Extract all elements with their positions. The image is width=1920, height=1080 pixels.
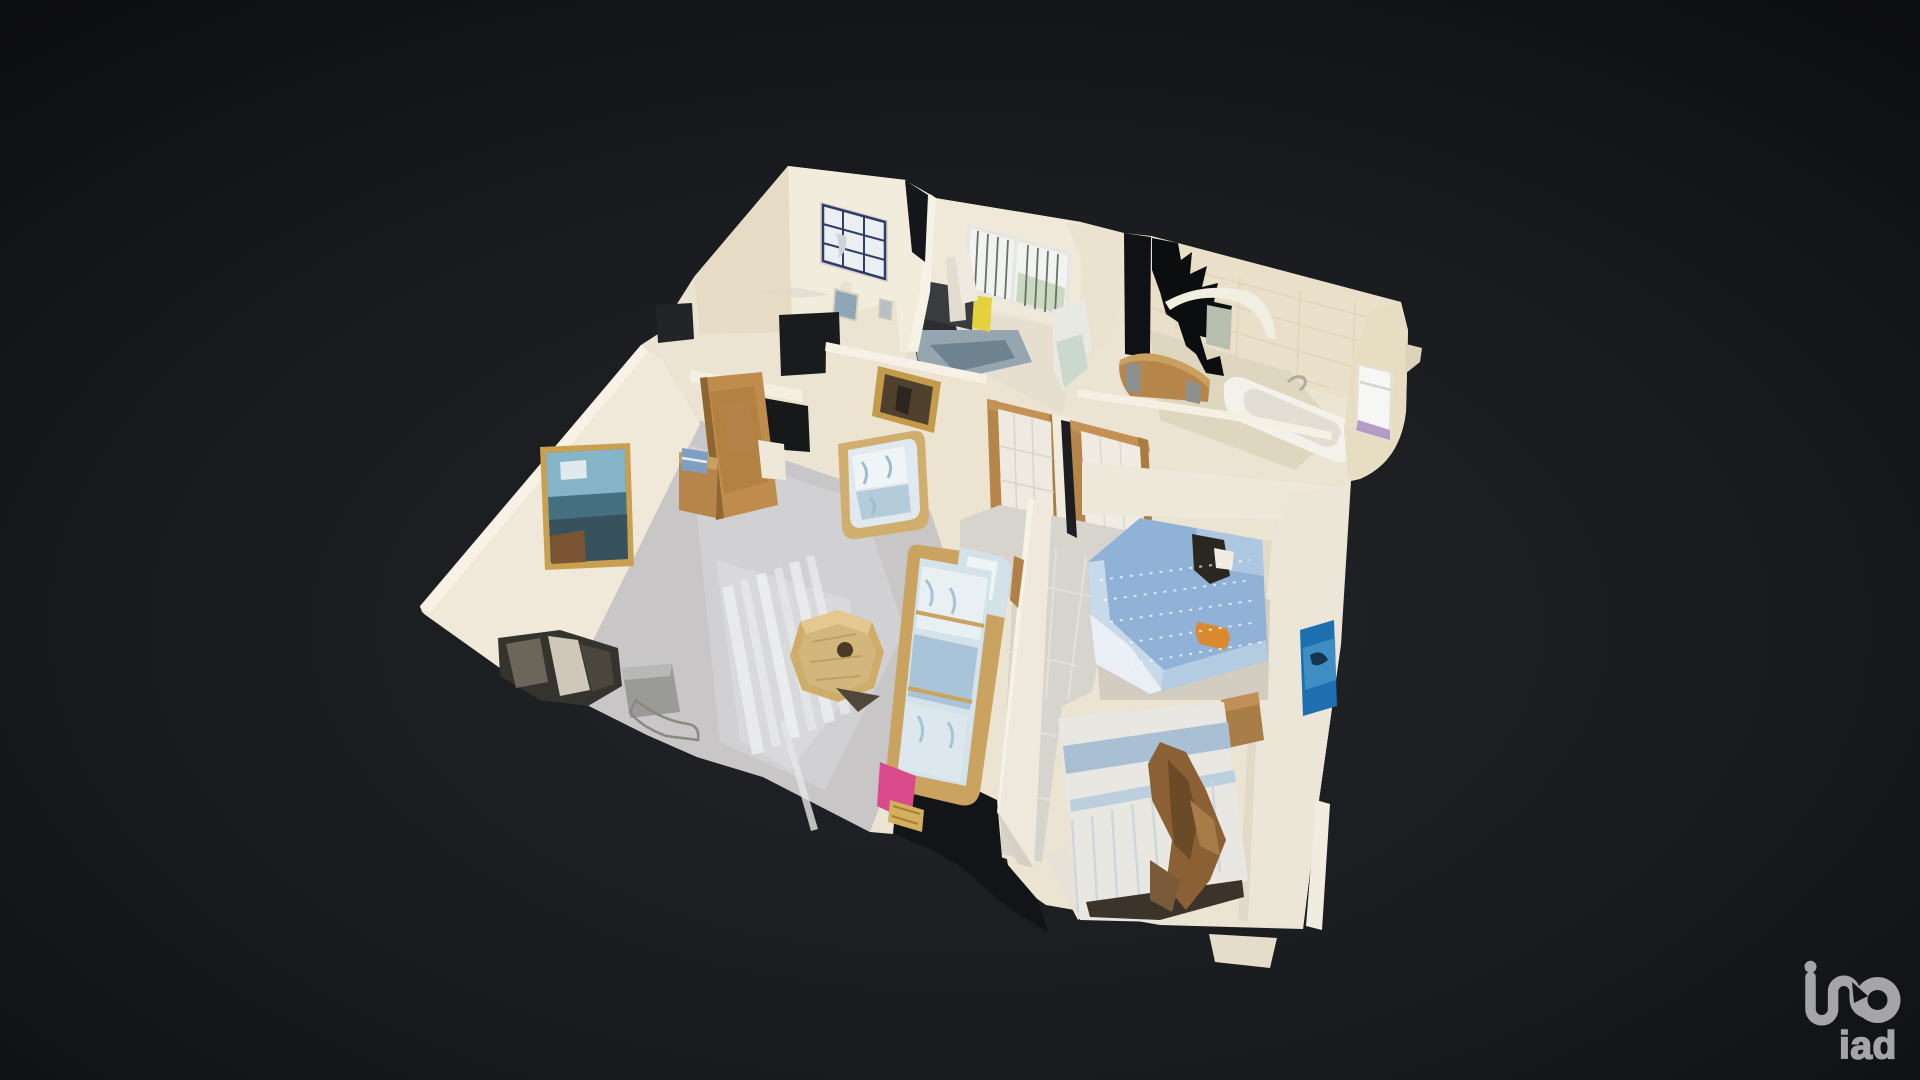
svg-text:iad: iad — [1839, 1025, 1897, 1068]
